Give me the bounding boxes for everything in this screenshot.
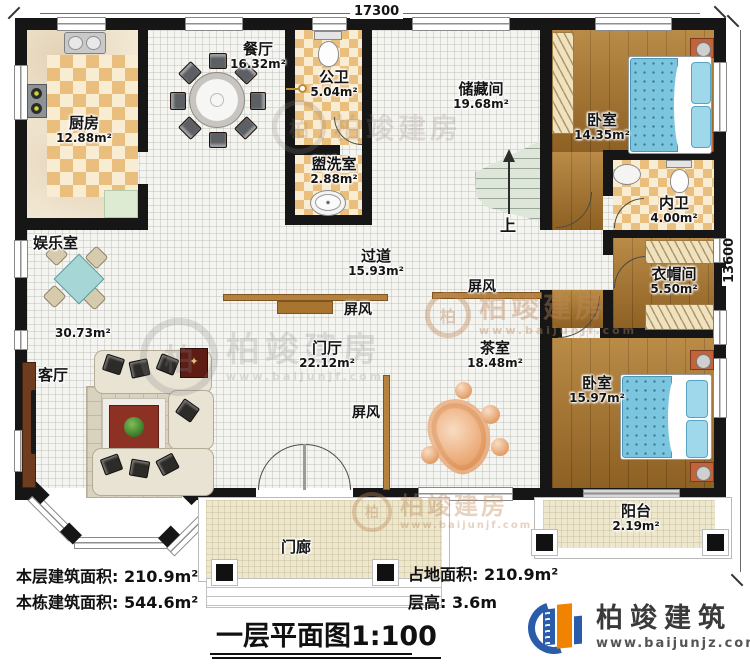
innerbath-basin bbox=[613, 164, 641, 185]
label-dining: 餐厅 16.32m² bbox=[230, 41, 286, 71]
window-publicbath-top bbox=[312, 17, 347, 31]
coffee-table-plant bbox=[124, 417, 144, 437]
room-area: 4.00m² bbox=[650, 212, 697, 225]
wall-corridor-bedroom2 bbox=[540, 290, 552, 500]
room-name: 储藏间 bbox=[453, 81, 509, 98]
label-inner-bath: 内卫 4.00m² bbox=[650, 195, 697, 225]
logo-building-small bbox=[574, 616, 582, 645]
dimension-right-text: 13600 bbox=[722, 268, 737, 286]
bed-pillow bbox=[686, 420, 708, 458]
window-entertainment-left bbox=[14, 240, 28, 278]
room-name: 门厅 bbox=[299, 340, 355, 357]
room-area: 22.12m² bbox=[299, 357, 355, 370]
dining-chair bbox=[250, 92, 266, 110]
floor-area-text: 本层建筑面积: 210.9m² bbox=[16, 563, 198, 587]
room-area: 19.68m² bbox=[453, 98, 509, 111]
room-name: 餐厅 bbox=[230, 41, 286, 58]
wall-storage-bedroom bbox=[540, 18, 552, 230]
wall-bath-right bbox=[362, 18, 372, 225]
bed-bottom-sheet-fold bbox=[668, 376, 682, 458]
porch-column-left bbox=[212, 560, 237, 585]
dimension-right-value: 13600 bbox=[722, 258, 740, 328]
window-living-left-a bbox=[14, 330, 28, 350]
publicbath-toilet-tank bbox=[314, 31, 342, 40]
porch-floor bbox=[206, 500, 442, 578]
room-area: 12.88m² bbox=[56, 132, 112, 145]
bed-bottom-mattress bbox=[622, 376, 672, 458]
dining-table-center bbox=[210, 93, 224, 107]
label-kitchen: 厨房 12.88m² bbox=[56, 115, 112, 145]
brand-logo: 柏竣建筑 www.baijunjz.com bbox=[526, 596, 746, 660]
room-name: 卧室 bbox=[569, 375, 625, 392]
label-public-bath: 公卫 5.04m² bbox=[310, 69, 357, 99]
window-bedroomtop-top bbox=[595, 17, 672, 31]
entry-door-center-post bbox=[303, 444, 306, 490]
room-name: 公卫 bbox=[310, 69, 357, 86]
room-area: 15.97m² bbox=[569, 392, 625, 405]
stove-burner-bottom bbox=[31, 103, 42, 114]
screen-partition-left-console bbox=[277, 301, 333, 314]
bed-pillow bbox=[691, 62, 711, 104]
room-area: 14.35m² bbox=[574, 129, 630, 142]
stairs-up-arrow bbox=[503, 149, 515, 162]
label-balcony: 阳台 2.19m² bbox=[612, 503, 659, 533]
room-area: 2.88m² bbox=[310, 173, 357, 186]
logo-mark-icon bbox=[526, 598, 588, 658]
nightstand bbox=[690, 350, 714, 370]
kitchen-sink-bowl-left bbox=[68, 36, 83, 50]
dining-chair bbox=[170, 92, 186, 110]
wall-vestibule-innerbath bbox=[603, 150, 613, 196]
bed-top-sheet-fold bbox=[674, 58, 688, 152]
floor-height-text: 层高: 3.6m bbox=[408, 589, 497, 613]
room-area: 15.93m² bbox=[348, 265, 404, 278]
wall-bath-left bbox=[285, 18, 295, 225]
window-dining-top bbox=[185, 17, 243, 31]
bed-top-mattress bbox=[630, 58, 678, 152]
logo-building-orange bbox=[557, 603, 572, 649]
innerbath-toilet-tank bbox=[666, 160, 692, 168]
kitchen-appliance bbox=[104, 190, 138, 218]
baywindow-bottom bbox=[74, 537, 170, 549]
label-washroom: 盥洗室 2.88m² bbox=[310, 156, 357, 186]
logo-brand-text: 柏竣建筑 bbox=[596, 605, 750, 633]
wall-cloak-left-a bbox=[603, 238, 613, 255]
logo-url-text: www.baijunjz.com bbox=[596, 636, 750, 651]
land-area-text: 占地面积: 210.9m² bbox=[408, 561, 558, 585]
washroom-basin-inner bbox=[315, 194, 341, 211]
balcony-column-left bbox=[532, 530, 557, 555]
wall-bath-bottom bbox=[285, 215, 372, 225]
bed-pillow bbox=[691, 106, 711, 148]
building-area-text: 本栋建筑面积: 544.6m² bbox=[16, 589, 198, 613]
stove-burner-top bbox=[31, 88, 42, 99]
label-tea-room: 茶室 18.48m² bbox=[467, 340, 523, 370]
window-kitchen-left bbox=[14, 65, 28, 120]
label-cloakroom: 衣帽间 5.50m² bbox=[650, 266, 697, 296]
stairs-direction-line bbox=[508, 160, 510, 214]
room-name: 衣帽间 bbox=[650, 266, 697, 283]
corner-mark-bottomright bbox=[731, 574, 744, 587]
room-area: 5.50m² bbox=[650, 283, 697, 296]
label-entertainment: 娱乐室 bbox=[33, 232, 78, 253]
wall-kitchen-right-a bbox=[138, 18, 148, 152]
cloakroom-wardrobe-bottom bbox=[645, 304, 714, 330]
window-bedroombottom-right bbox=[713, 358, 727, 418]
side-table-star: ✦ bbox=[188, 356, 200, 368]
label-corridor: 过道 15.93m² bbox=[348, 248, 404, 278]
room-area: 18.48m² bbox=[467, 357, 523, 370]
label-screen-vertical: 屏风 bbox=[352, 402, 380, 422]
room-name: 阳台 bbox=[612, 503, 659, 520]
label-screen-left: 屏风 bbox=[344, 299, 372, 319]
cloakroom-wardrobe-top bbox=[645, 240, 714, 264]
porch-steps bbox=[206, 578, 442, 608]
label-stairs-up: 上 bbox=[500, 212, 516, 236]
wall-bath-divider bbox=[290, 145, 340, 155]
window-kitchen-top bbox=[57, 17, 106, 31]
window-storage-top bbox=[412, 17, 510, 31]
tearoom-art-dot bbox=[455, 382, 472, 399]
logo-building-blue bbox=[543, 608, 555, 645]
room-name: 过道 bbox=[348, 248, 404, 265]
room-area: 16.32m² bbox=[230, 58, 286, 71]
balcony-column-right bbox=[703, 530, 728, 555]
tearoom-art-dot bbox=[491, 438, 509, 456]
kitchen-sink-bowl-right bbox=[86, 36, 101, 50]
label-porch: 门廊 bbox=[281, 536, 311, 557]
label-storage: 储藏间 19.68m² bbox=[453, 81, 509, 111]
bedroom-top-wardrobe bbox=[552, 32, 574, 134]
floor-plan: ✦ 柏 柏竣建房 柏 bbox=[0, 0, 750, 665]
label-foyer: 门厅 22.12m² bbox=[299, 340, 355, 370]
room-name: 厨房 bbox=[56, 115, 112, 132]
room-area: 5.04m² bbox=[310, 86, 357, 99]
nightstand bbox=[690, 38, 714, 58]
innerbath-toilet-bowl bbox=[670, 169, 689, 193]
dimension-line-right bbox=[740, 30, 741, 572]
room-name: 盥洗室 bbox=[310, 156, 357, 173]
bed-pillow bbox=[686, 380, 708, 418]
tearoom-art-dot bbox=[481, 405, 500, 424]
label-living: 客厅 bbox=[38, 364, 68, 385]
porch-column-right bbox=[373, 560, 398, 585]
tearoom-art-dot bbox=[421, 446, 439, 464]
publicbath-leader-dot bbox=[298, 84, 307, 93]
room-name: 内卫 bbox=[650, 195, 697, 212]
plan-title-underline2 bbox=[210, 653, 412, 655]
label-entertainment-area: 30.73m² bbox=[55, 326, 111, 340]
window-bedroomtop-right bbox=[713, 62, 727, 132]
dining-chair bbox=[209, 53, 227, 69]
room-name: 茶室 bbox=[467, 340, 523, 357]
corner-mark-topright-a bbox=[714, 6, 727, 19]
dining-chair bbox=[209, 132, 227, 148]
label-bedroom-top: 卧室 14.35m² bbox=[574, 112, 630, 142]
publicbath-toilet-bowl bbox=[318, 41, 339, 67]
room-name: 卧室 bbox=[574, 112, 630, 129]
label-bedroom-bottom: 卧室 15.97m² bbox=[569, 375, 625, 405]
room-area: 2.19m² bbox=[612, 520, 659, 533]
dimension-top-value: 17300 bbox=[350, 4, 403, 19]
screen-partition-vertical bbox=[383, 375, 390, 490]
label-screen-right: 屏风 bbox=[468, 276, 496, 296]
corner-mark-topright-b bbox=[727, 15, 740, 28]
wall-innerbath-bottom bbox=[603, 230, 714, 238]
tv-screen bbox=[31, 390, 36, 454]
sofa-cushion bbox=[129, 458, 151, 478]
wall-kitchen-bottom bbox=[15, 218, 148, 230]
nightstand bbox=[690, 462, 714, 482]
